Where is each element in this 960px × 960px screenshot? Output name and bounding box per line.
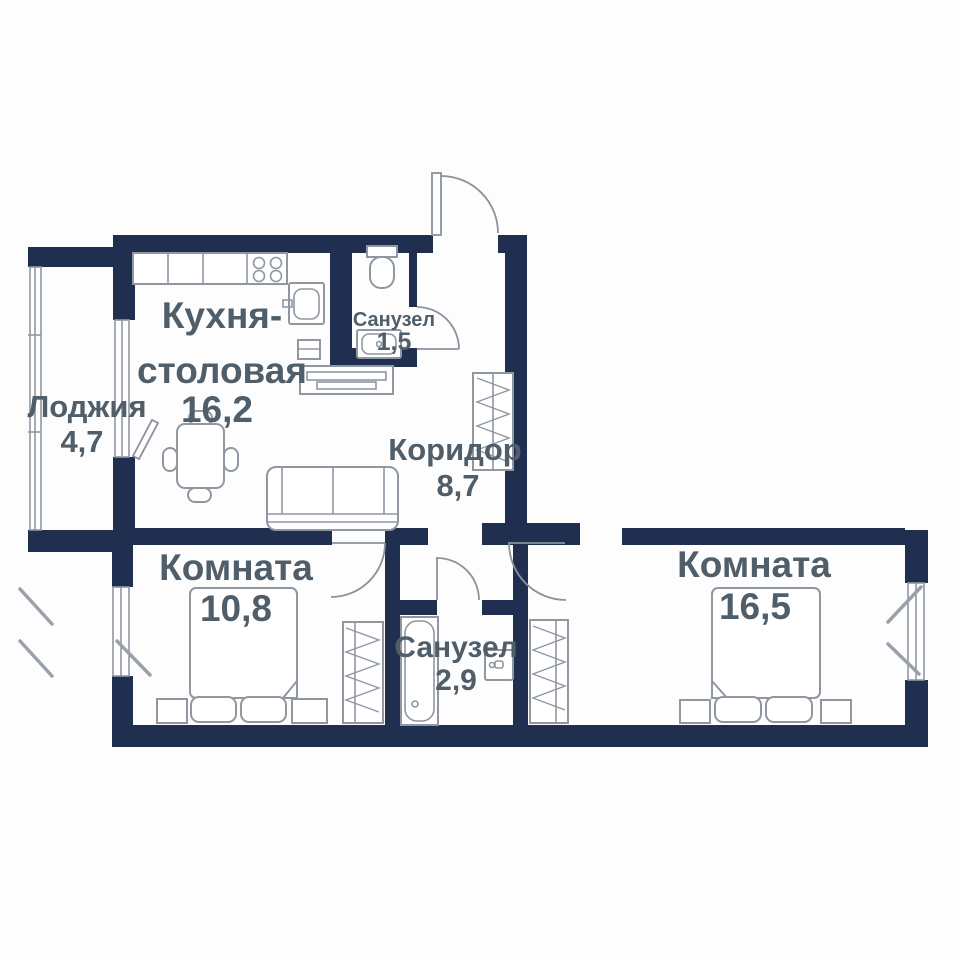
- wall: [622, 528, 905, 545]
- pillow-icon: [766, 697, 812, 722]
- tv-stand-icon: [300, 366, 393, 394]
- wall: [28, 530, 113, 552]
- wall: [28, 247, 113, 267]
- bathroom-small-area: 1,5: [377, 328, 412, 356]
- wall: [385, 600, 437, 615]
- kitchen-label-line2: столовая: [137, 350, 307, 391]
- bathroom-main-label: Санузел: [394, 631, 517, 664]
- entry-door-arc: [441, 176, 498, 233]
- kitchen-label-line1: Кухня-: [162, 295, 282, 336]
- nightstand-icon: [157, 699, 187, 723]
- loggia-label: Лоджия: [27, 389, 146, 424]
- kitchen-sink-icon: [283, 283, 324, 324]
- wall: [330, 237, 352, 367]
- wardrobe-icon: [530, 620, 568, 723]
- bedroom-2-area: 16,5: [719, 586, 791, 627]
- wall: [409, 237, 417, 307]
- loggia-area: 4,7: [60, 424, 103, 459]
- sofa-icon: [267, 467, 398, 530]
- bedroom-2-label: Комната: [677, 544, 831, 585]
- pillow-icon: [715, 697, 761, 722]
- floor-plan-svg: Кухня- столовая 16,2 Лоджия 4,7 Санузел …: [0, 0, 960, 960]
- kitchen-area: 16,2: [181, 389, 253, 430]
- corridor-label: Коридор: [388, 432, 521, 467]
- wall: [112, 545, 133, 587]
- room-labels: Кухня- столовая 16,2 Лоджия 4,7 Санузел …: [27, 295, 831, 697]
- toilet-icon: [367, 246, 397, 288]
- wall: [905, 530, 928, 583]
- door-arc: [437, 558, 479, 600]
- bedroom-1-label: Комната: [159, 547, 313, 588]
- wardrobe-icon: [343, 622, 383, 723]
- wall: [482, 600, 515, 615]
- nightstand-icon: [680, 700, 710, 723]
- wall: [112, 676, 133, 725]
- bedroom-1-area: 10,8: [200, 588, 272, 629]
- bathroom-main-area: 2,9: [435, 664, 477, 697]
- casement-line: [20, 641, 52, 676]
- wall: [905, 680, 928, 745]
- pillow-icon: [191, 697, 236, 722]
- entry-door-leaf: [432, 173, 441, 235]
- casement-line: [20, 589, 52, 624]
- wall: [112, 725, 928, 747]
- wall: [113, 235, 135, 320]
- balcony-door-leaf: [133, 420, 158, 459]
- nightstand-icon: [821, 700, 851, 723]
- corridor-area: 8,7: [436, 468, 479, 503]
- door-arc: [331, 543, 385, 597]
- floor-plan-image: Кухня- столовая 16,2 Лоджия 4,7 Санузел …: [0, 0, 960, 960]
- pillow-icon: [241, 697, 286, 722]
- wall: [482, 523, 580, 545]
- nightstand-icon: [292, 699, 327, 723]
